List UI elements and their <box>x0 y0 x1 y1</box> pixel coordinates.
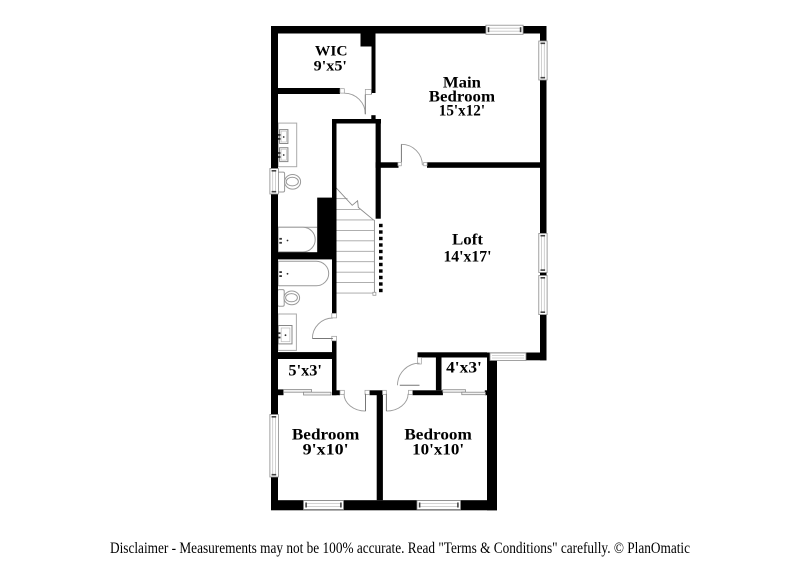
svg-text:Loft: Loft <box>452 232 484 249</box>
svg-text:9'x10': 9'x10' <box>303 441 349 458</box>
svg-text:14'x17': 14'x17' <box>443 249 491 266</box>
svg-text:4'x3': 4'x3' <box>446 360 482 377</box>
svg-text:15'x12': 15'x12' <box>439 103 485 120</box>
svg-text:WIC: WIC <box>315 44 348 60</box>
svg-text:10'x10': 10'x10' <box>412 441 464 458</box>
svg-text:9'x5': 9'x5' <box>314 59 347 75</box>
svg-text:5'x3': 5'x3' <box>288 362 322 379</box>
svg-text:Disclaimer - Measurements may: Disclaimer - Measurements may not be 100… <box>110 540 690 557</box>
